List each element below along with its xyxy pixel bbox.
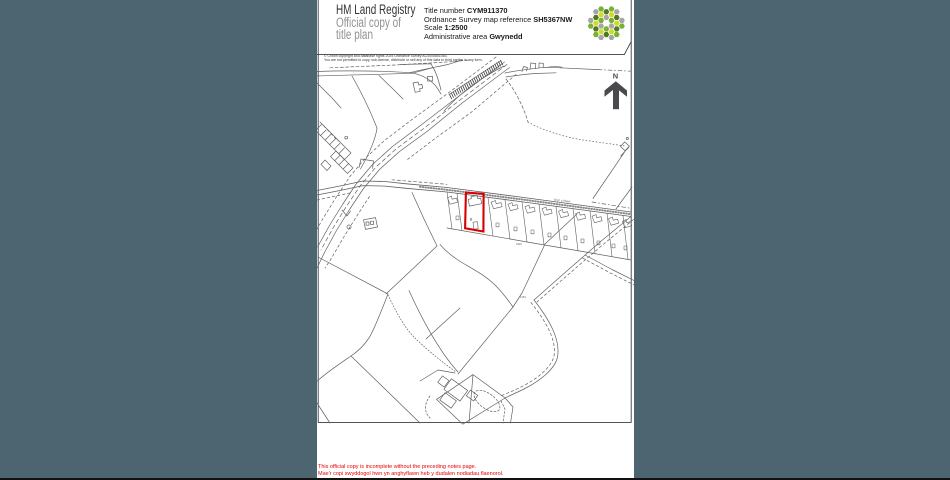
svg-text:4153: 4153 — [520, 295, 526, 299]
svg-text:N: N — [613, 72, 618, 81]
svg-text:2325: 2325 — [516, 242, 522, 246]
